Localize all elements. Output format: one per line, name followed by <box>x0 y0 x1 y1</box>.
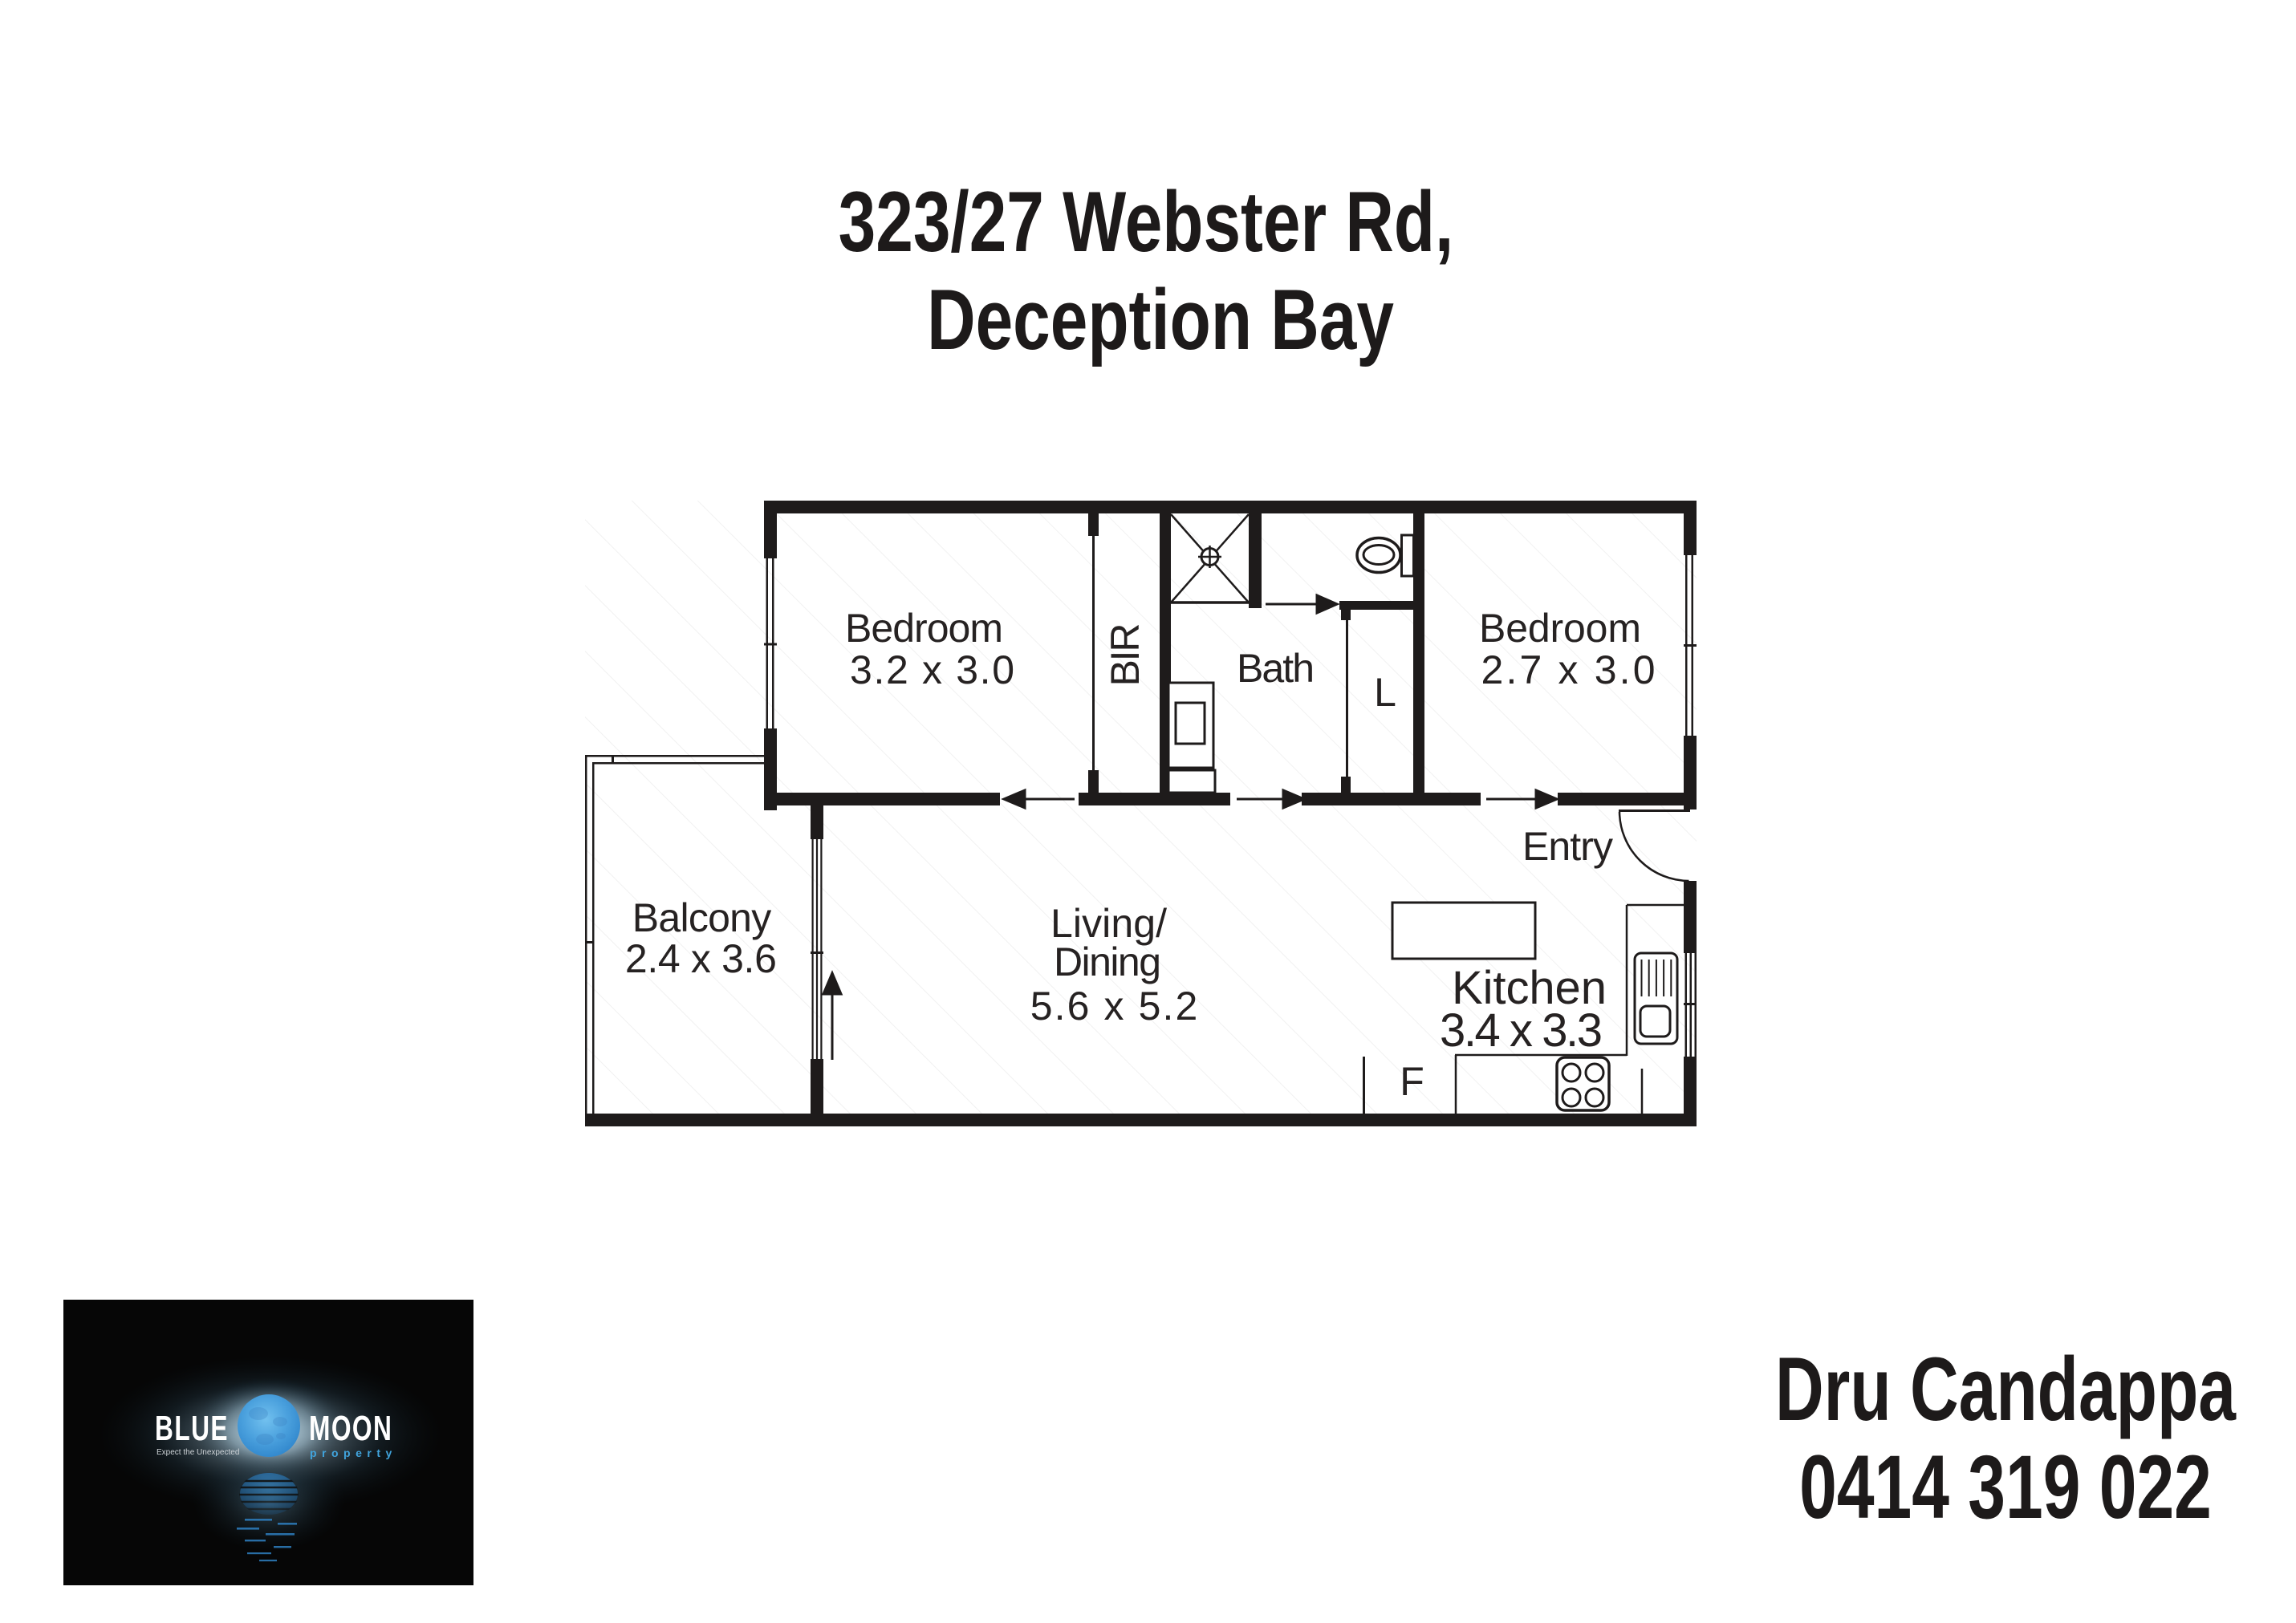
svg-text:BIR: BIR <box>1103 623 1148 687</box>
svg-text:property: property <box>310 1446 397 1459</box>
svg-text:Entry: Entry <box>1522 824 1613 869</box>
svg-text:MOON: MOON <box>309 1409 392 1448</box>
svg-text:Deception Bay: Deception Bay <box>927 272 1394 367</box>
svg-text:BLUE: BLUE <box>155 1409 229 1448</box>
svg-text:Balcony: Balcony <box>632 895 772 940</box>
svg-text:Expect the Unexpected: Expect the Unexpected <box>156 1448 239 1457</box>
svg-text:2.4 x 3.6: 2.4 x 3.6 <box>625 936 777 981</box>
svg-text:0414 319 022: 0414 319 022 <box>1799 1436 2212 1537</box>
svg-text:Dru Candappa: Dru Candappa <box>1775 1338 2237 1439</box>
svg-text:3.4 x 3.3: 3.4 x 3.3 <box>1440 1004 1603 1057</box>
svg-text:2.7 x 3.0: 2.7 x 3.0 <box>1481 647 1656 692</box>
svg-text:323/27 Webster Rd,: 323/27 Webster Rd, <box>839 174 1454 270</box>
svg-text:3.2 x 3.0: 3.2 x 3.0 <box>850 647 1014 692</box>
svg-text:L: L <box>1374 670 1396 715</box>
svg-text:Bedroom: Bedroom <box>1479 606 1641 651</box>
svg-text:F: F <box>1400 1059 1424 1104</box>
svg-text:Dining: Dining <box>1054 939 1161 984</box>
svg-text:5.6 x 5.2: 5.6 x 5.2 <box>1030 984 1198 1029</box>
svg-text:Bedroom: Bedroom <box>845 606 1003 651</box>
svg-text:Bath: Bath <box>1237 646 1315 691</box>
